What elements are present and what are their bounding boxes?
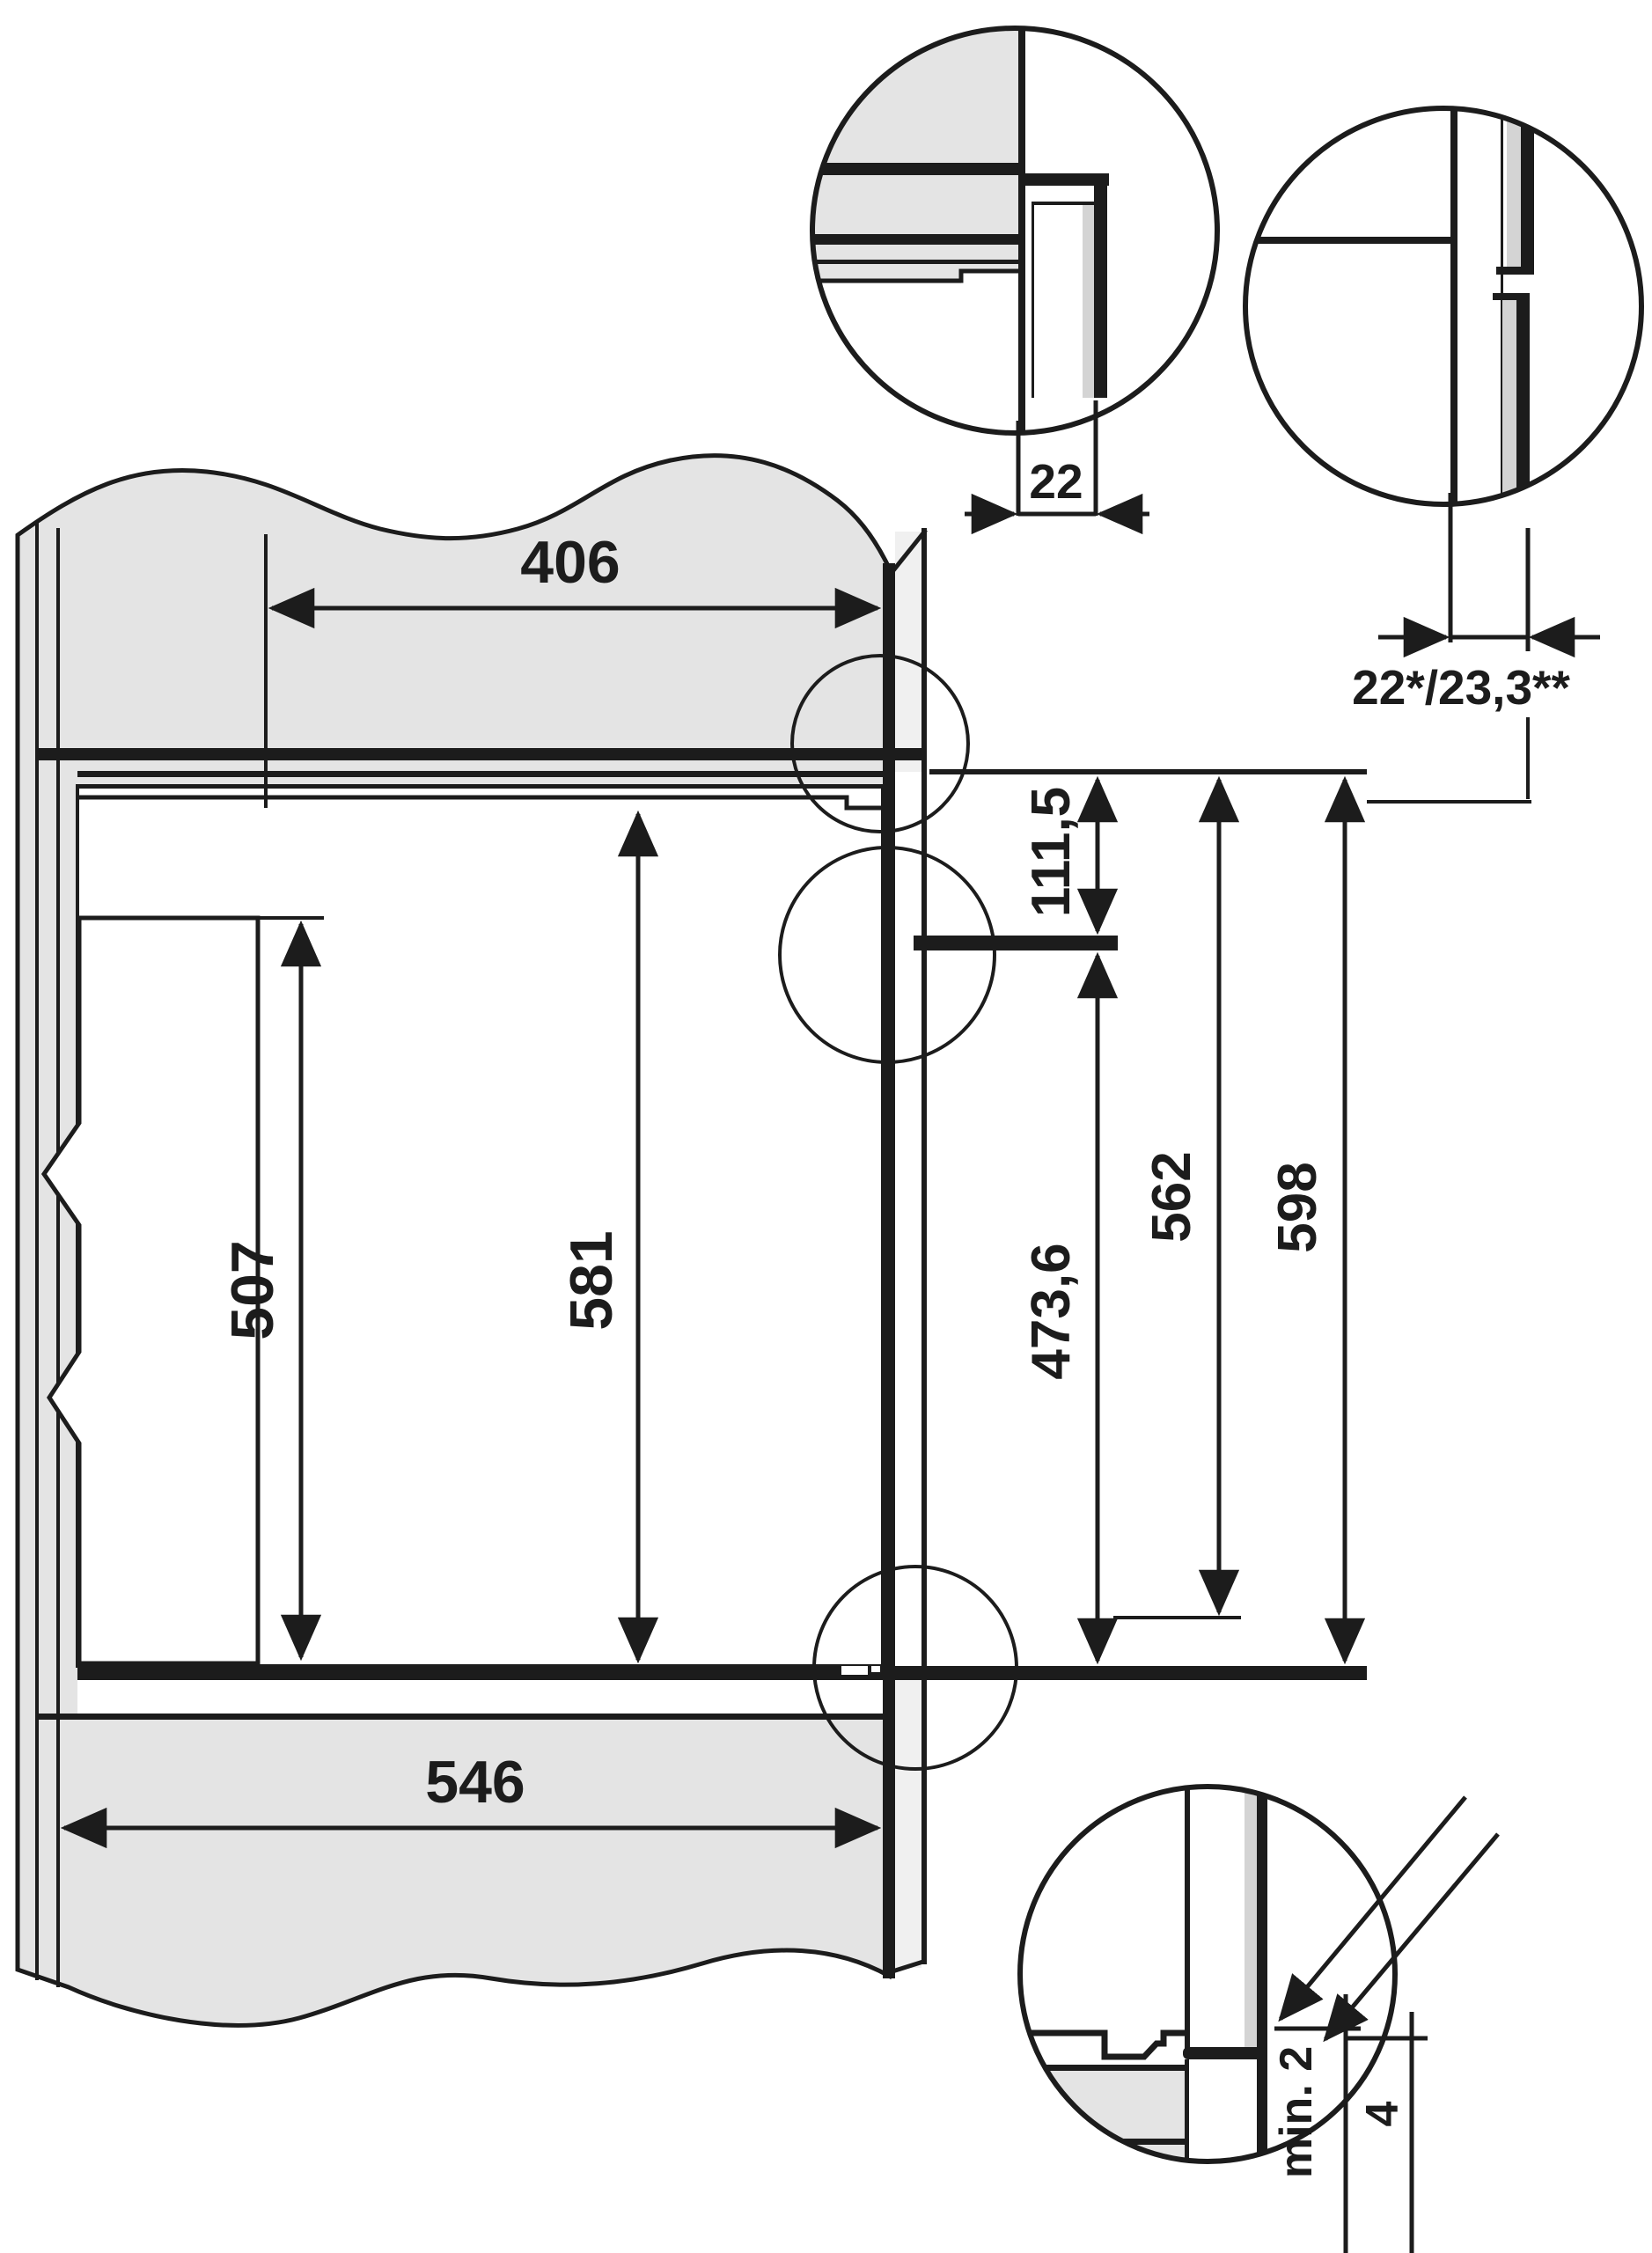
- dim-22-23-3: 22*/23,3**: [1352, 493, 1600, 799]
- installation-diagram-page: 406 581 507 546 111,5 473,6 562 598: [0, 0, 1652, 2253]
- dim-label-min-2: min. 2: [1271, 2046, 1322, 2178]
- lower-compartment-strip: [77, 1680, 883, 1714]
- dim-label-473-6: 473,6: [1021, 1243, 1082, 1379]
- dim-label-598: 598: [1267, 1162, 1328, 1252]
- dim-598: 598: [1267, 780, 1345, 1661]
- dim-473-6: 473,6: [1021, 956, 1098, 1661]
- dim-label-507: 507: [219, 1240, 286, 1339]
- dim-label-111-5: 111,5: [1021, 787, 1082, 917]
- door-front-strip: [895, 772, 921, 1666]
- dim-label-562: 562: [1142, 1151, 1202, 1242]
- dim-label-22: 22: [1029, 454, 1083, 509]
- dim-label-546: 546: [425, 1749, 525, 1816]
- detail-circle-bottom-right: min. 2 4: [1017, 1785, 1498, 2253]
- dim-label-406: 406: [520, 529, 620, 596]
- dim-label-22-23-3: 22*/23,3**: [1352, 660, 1570, 715]
- detail-circle-top-right: 22*/23,3**: [1245, 104, 1641, 799]
- niche-floor-line: [77, 1666, 1367, 1680]
- installation-diagram: 406 581 507 546 111,5 473,6 562 598: [0, 0, 1652, 2253]
- detail-circle-top-left: 22: [797, 22, 1217, 516]
- dim-label-581: 581: [558, 1230, 625, 1330]
- front-strip-outline: [921, 528, 927, 1964]
- dim-label-4: 4: [1357, 2101, 1408, 2126]
- dim-562: 562: [1142, 780, 1219, 1612]
- lower-shelf-line: [37, 1714, 883, 1720]
- dim-111-5: 111,5: [1021, 780, 1098, 931]
- tick-mid-bar: [914, 936, 1118, 950]
